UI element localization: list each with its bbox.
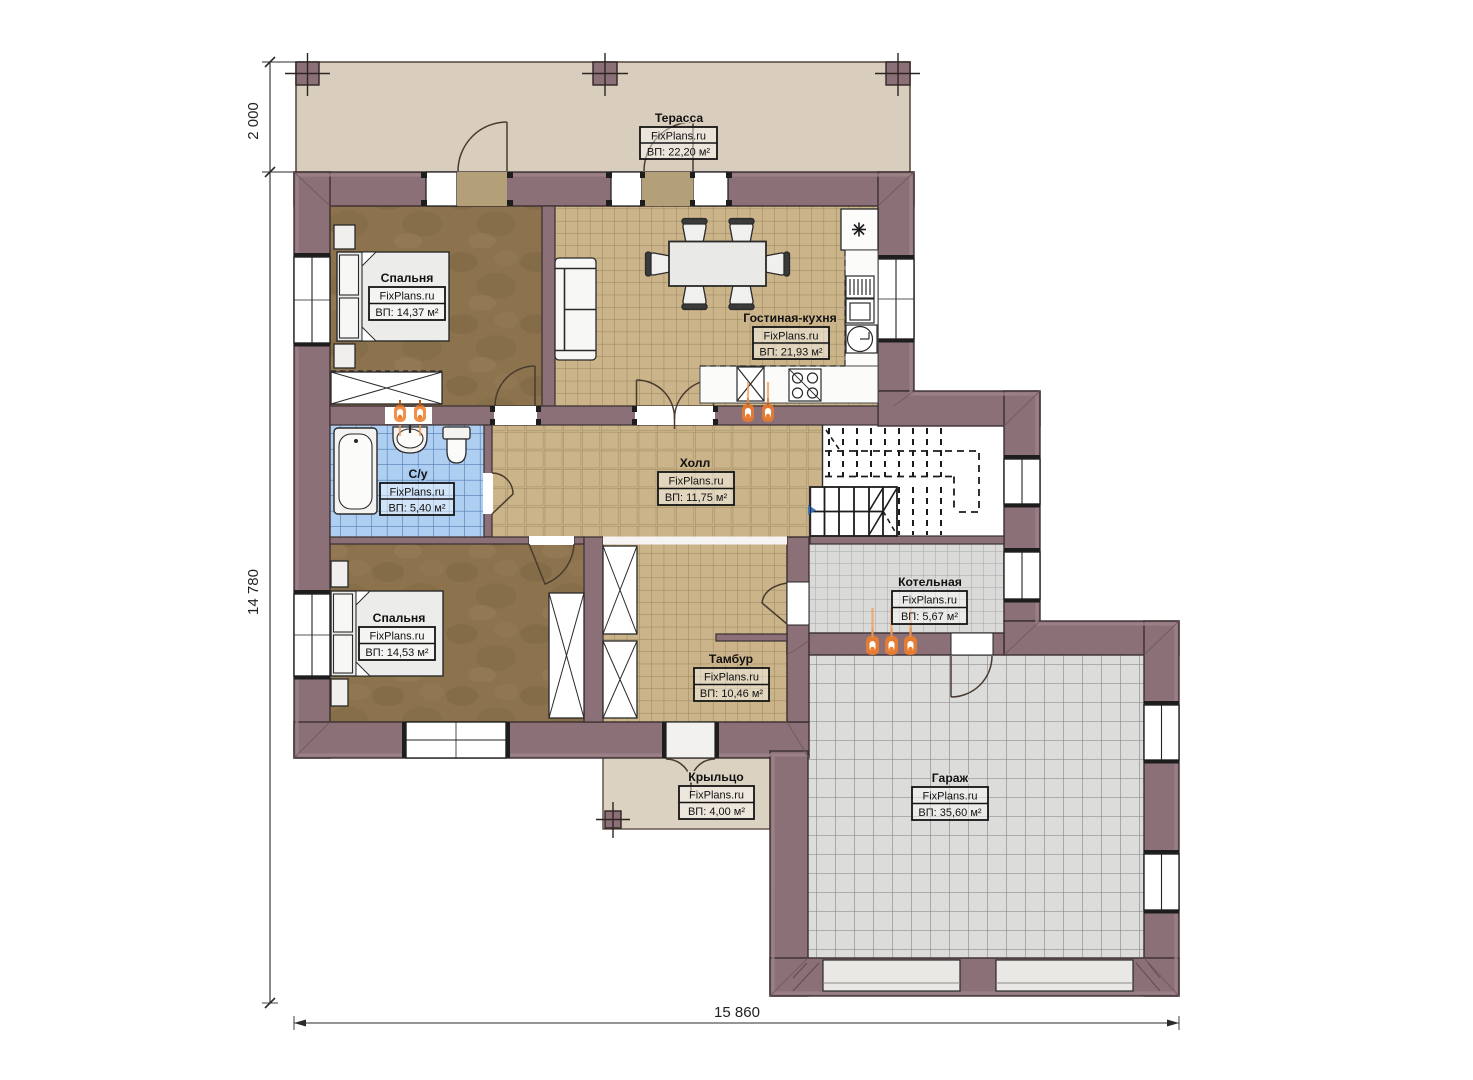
- svg-text:Гостиная-кухня: Гостиная-кухня: [743, 311, 836, 325]
- svg-text:С/у: С/у: [409, 467, 428, 481]
- svg-text:Крыльцо: Крыльцо: [688, 770, 743, 784]
- svg-text:2 000: 2 000: [245, 102, 262, 140]
- svg-text:ВП: 14,53 м²: ВП: 14,53 м²: [365, 647, 429, 659]
- svg-text:FixPlans.ru: FixPlans.ru: [668, 476, 723, 488]
- svg-text:ВП: 5,40 м²: ВП: 5,40 м²: [388, 503, 445, 515]
- svg-text:Спальня: Спальня: [381, 271, 434, 285]
- svg-text:Котельная: Котельная: [898, 575, 962, 589]
- svg-text:FixPlans.ru: FixPlans.ru: [704, 672, 759, 684]
- svg-text:Терасса: Терасса: [655, 111, 704, 125]
- svg-text:ВП: 35,60 м²: ВП: 35,60 м²: [918, 807, 982, 819]
- svg-text:FixPlans.ru: FixPlans.ru: [902, 595, 957, 607]
- svg-text:FixPlans.ru: FixPlans.ru: [389, 487, 444, 499]
- svg-text:FixPlans.ru: FixPlans.ru: [922, 791, 977, 803]
- svg-text:Гараж: Гараж: [932, 771, 969, 785]
- svg-text:Холл: Холл: [680, 456, 711, 470]
- svg-text:FixPlans.ru: FixPlans.ru: [763, 331, 818, 343]
- svg-text:14 780: 14 780: [245, 569, 262, 615]
- svg-text:ВП: 14,37 м²: ВП: 14,37 м²: [375, 307, 439, 319]
- svg-text:ВП: 10,46 м²: ВП: 10,46 м²: [700, 688, 764, 700]
- svg-text:FixPlans.ru: FixPlans.ru: [689, 790, 744, 802]
- svg-text:ВП: 22,20 м²: ВП: 22,20 м²: [647, 147, 711, 159]
- svg-text:ВП: 11,75 м²: ВП: 11,75 м²: [665, 492, 728, 504]
- svg-text:Тамбур: Тамбур: [709, 652, 753, 666]
- svg-text:FixPlans.ru: FixPlans.ru: [369, 631, 424, 643]
- svg-text:ВП: 21,93 м²: ВП: 21,93 м²: [759, 347, 823, 359]
- svg-text:FixPlans.ru: FixPlans.ru: [651, 131, 706, 143]
- svg-text:15 860: 15 860: [714, 1004, 760, 1021]
- svg-text:FixPlans.ru: FixPlans.ru: [379, 291, 434, 303]
- svg-text:ВП: 5,67 м²: ВП: 5,67 м²: [901, 611, 958, 623]
- svg-text:Спальня: Спальня: [373, 611, 426, 625]
- svg-text:ВП: 4,00 м²: ВП: 4,00 м²: [688, 806, 745, 818]
